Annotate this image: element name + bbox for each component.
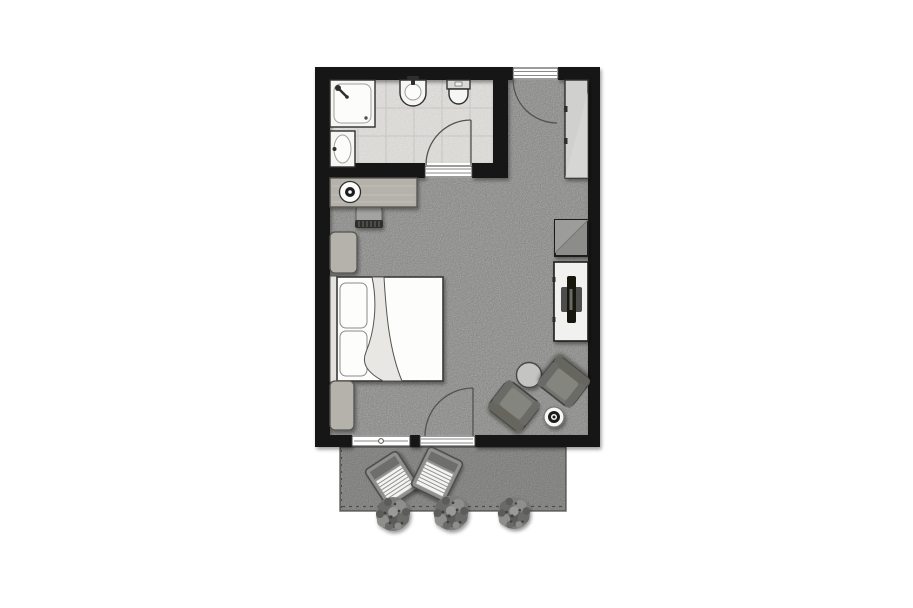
wall-bathroom-south-right xyxy=(472,163,508,178)
desk-chair xyxy=(355,206,383,228)
desk xyxy=(330,178,417,207)
headboard xyxy=(330,276,337,382)
sink-tap-icon xyxy=(333,147,337,151)
pedestal-washbasin xyxy=(400,76,426,106)
minibar-cabinet xyxy=(555,220,588,256)
pillow-top xyxy=(340,283,367,328)
wardrobe-handle xyxy=(564,106,568,112)
wall-left xyxy=(315,67,330,447)
wall-bottom-right xyxy=(475,435,600,447)
wall-bathroom-east xyxy=(493,67,508,178)
coffee-table xyxy=(517,363,542,388)
sideboard-knob xyxy=(553,317,556,322)
floor-plan-canvas xyxy=(0,0,913,608)
window-handle xyxy=(379,439,384,444)
nightstand-top xyxy=(330,232,357,273)
shower-drain xyxy=(364,116,367,119)
wardrobe-handle xyxy=(564,138,568,144)
shrub-3 xyxy=(498,497,530,529)
toilet xyxy=(447,80,470,104)
wall-bottom-left xyxy=(315,435,352,447)
wall-right xyxy=(588,67,600,447)
wardrobe xyxy=(564,80,588,178)
desk-lamp-icon xyxy=(340,182,361,203)
tv-sideboard xyxy=(553,262,589,341)
toilet-flush-button xyxy=(455,82,462,86)
sink xyxy=(330,131,355,167)
nightstand-bottom xyxy=(330,381,354,430)
window xyxy=(352,436,410,446)
pillow-bottom xyxy=(340,331,367,376)
shrub-2 xyxy=(434,496,469,531)
shower xyxy=(330,80,375,127)
sideboard-knob xyxy=(553,277,556,282)
shrub-1 xyxy=(376,497,410,531)
wall-bottom-pier xyxy=(410,435,420,447)
double-bed xyxy=(330,276,443,382)
side-table xyxy=(544,407,564,427)
